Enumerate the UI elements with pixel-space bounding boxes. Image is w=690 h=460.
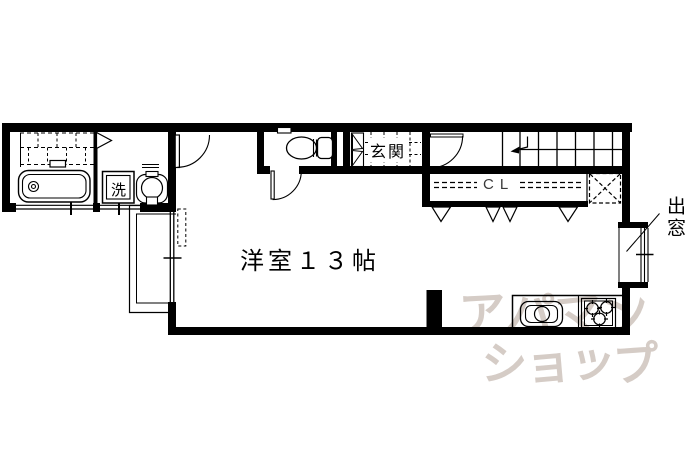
bay-window-label: 出窓 [661,196,688,240]
floor-plan-drawing [0,0,690,460]
entrance-label: 玄関 [369,138,407,162]
washing-machine-label: 洗 [111,179,126,200]
storage-x-box [590,174,621,204]
main-room-label: 洋室１３帖 [240,241,380,276]
closet-label: CL [480,176,517,193]
toilet [278,128,333,160]
toilet-door [271,171,301,200]
label-leader-line [627,214,660,252]
dashed-fixture-box [178,209,186,246]
hall-door [431,134,464,168]
bathroom-door [97,133,112,149]
pillar [427,290,443,330]
stairs-direction-arrow [511,147,520,154]
floor-plan: アパマン ショップ [0,0,690,460]
kitchen-sink [521,302,563,327]
bath-tile-pattern [20,133,94,167]
stairs [503,132,623,166]
closet-bifold-doors [432,207,578,222]
washroom-door [175,135,209,168]
bay-window-left [130,206,186,313]
entrance-door [352,133,364,167]
gas-stove [582,299,616,329]
burner-icon [584,300,601,317]
wash-basin [137,165,168,206]
window-glazing [170,210,174,302]
bathtub [19,171,91,203]
